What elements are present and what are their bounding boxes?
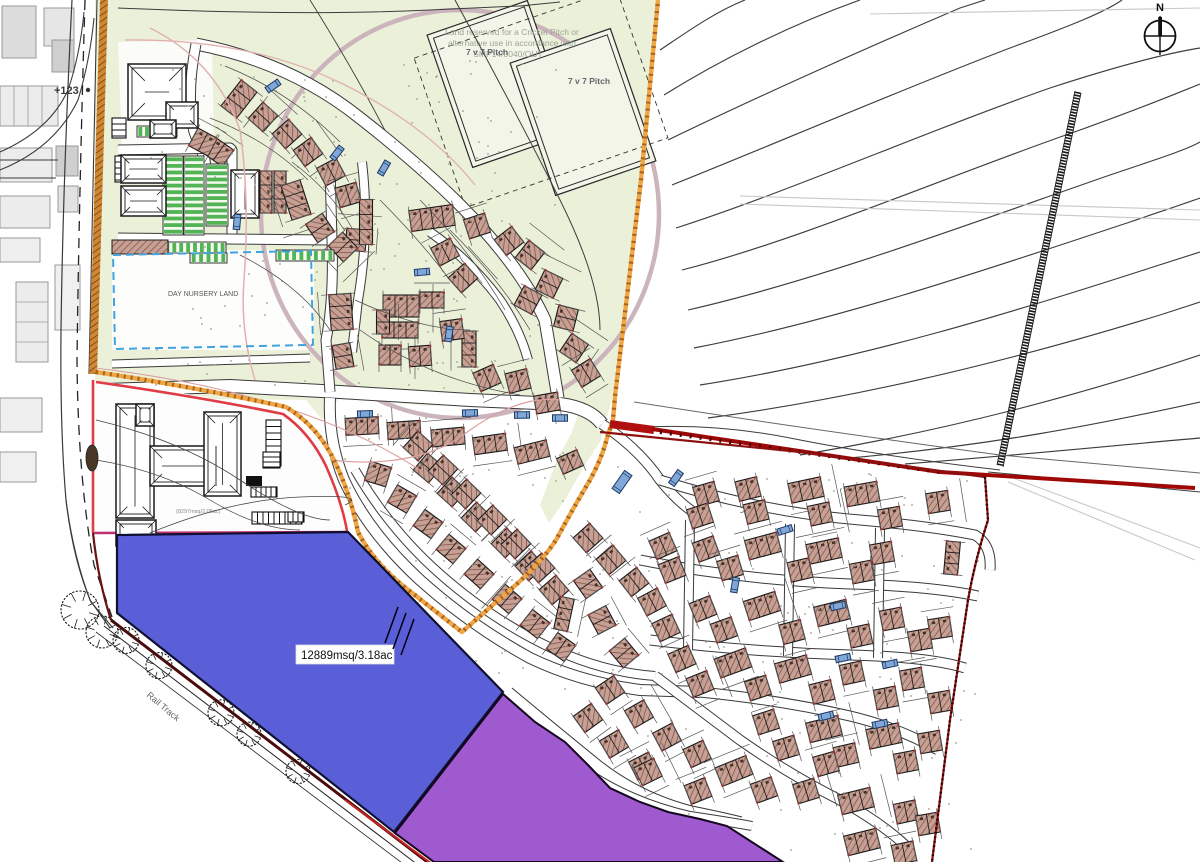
svg-text:12889msq/3.18ac: 12889msq/3.18ac	[301, 650, 393, 662]
svg-text:DAY NURSERY LAND: DAY NURSERY LAND	[168, 291, 238, 298]
svg-text:Land reserved for a Cricket Pi: Land reserved for a Cricket Pitch or	[445, 27, 579, 37]
svg-text:7 v 7 Pitch: 7 v 7 Pitch	[568, 76, 610, 86]
svg-text:7 v 7 Pitch: 7 v 7 Pitch	[466, 47, 508, 57]
svg-text:(8297msq/2.05ac): (8297msq/2.05ac)	[176, 509, 220, 515]
svg-text:N: N	[1156, 2, 1164, 14]
svg-text:+123: +123	[54, 85, 79, 97]
